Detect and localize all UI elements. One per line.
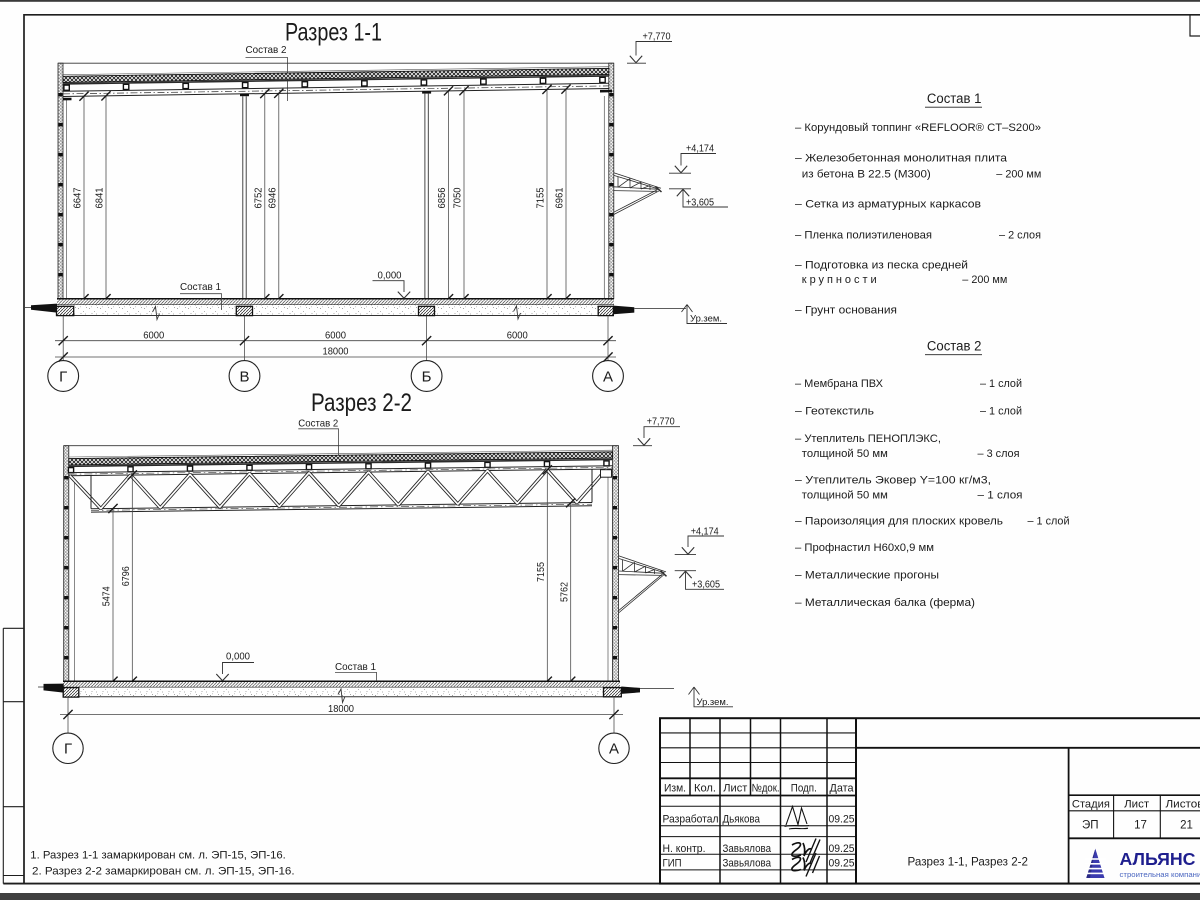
svg-text:+3,605: +3,605 bbox=[686, 197, 714, 208]
svg-text:Состав 2: Состав 2 bbox=[298, 417, 338, 429]
svg-text:7155: 7155 bbox=[536, 562, 547, 582]
svg-text:7050: 7050 bbox=[453, 187, 464, 208]
svg-text:2. Разрез 2-2 замаркирован см.: 2. Разрез 2-2 замаркирован см. л. ЭП-15,… bbox=[32, 866, 295, 878]
svg-text:– Утеплитель ПЕНОПЛЭКС,: – Утеплитель ПЕНОПЛЭКС, bbox=[795, 433, 941, 445]
svg-text:А: А bbox=[609, 741, 619, 758]
svg-text:+3,605: +3,605 bbox=[692, 579, 720, 590]
svg-text:– Грунт основания: – Грунт основания bbox=[795, 305, 897, 317]
svg-text:Состав 2: Состав 2 bbox=[927, 339, 982, 354]
svg-text:Состав 1: Состав 1 bbox=[180, 281, 221, 293]
svg-text:6000: 6000 bbox=[507, 329, 528, 341]
svg-text:+7,770: +7,770 bbox=[647, 417, 675, 428]
svg-text:В: В bbox=[239, 368, 249, 385]
svg-text:Завьялова: Завьялова bbox=[723, 843, 772, 855]
svg-text:Разрез 2-2: Разрез 2-2 bbox=[311, 389, 412, 417]
svg-text:0,000: 0,000 bbox=[378, 270, 402, 282]
svg-text:– Сетка из арматурных каркасов: – Сетка из арматурных каркасов bbox=[795, 199, 981, 211]
svg-text:6752: 6752 bbox=[254, 187, 265, 208]
svg-text:А: А bbox=[603, 368, 613, 385]
svg-text:Стадия: Стадия bbox=[1072, 798, 1110, 810]
svg-text:– 1 слой: – 1 слой bbox=[980, 406, 1022, 418]
svg-text:– 200 мм: – 200 мм bbox=[996, 169, 1041, 181]
svg-text:Н. контр.: Н. контр. bbox=[663, 843, 706, 855]
svg-text:– 1 слой: – 1 слой bbox=[1028, 516, 1070, 528]
svg-text:Подп.: Подп. bbox=[791, 783, 817, 795]
svg-text:– Корундовый топпинг «REFLOOR®: – Корундовый топпинг «REFLOOR® CT–S200» bbox=[795, 122, 1041, 134]
svg-text:6647: 6647 bbox=[73, 187, 84, 208]
svg-text:– Пленка полиэтиленовая: – Пленка полиэтиленовая bbox=[795, 230, 932, 242]
svg-text:– Пароизоляция для плоских кро: – Пароизоляция для плоских кровель bbox=[795, 516, 1003, 528]
svg-text:6856: 6856 bbox=[437, 187, 448, 208]
svg-text:– Подготовка из песка средней: – Подготовка из песка средней bbox=[795, 260, 968, 272]
svg-text:Завьялова: Завьялова bbox=[723, 857, 772, 869]
svg-text:5762: 5762 bbox=[559, 582, 570, 602]
svg-text:Г: Г bbox=[64, 741, 72, 758]
svg-text:+4,174: +4,174 bbox=[686, 143, 714, 154]
svg-text:Листов: Листов bbox=[1166, 798, 1200, 810]
svg-text:№док.: №док. bbox=[752, 783, 780, 795]
svg-text:6946: 6946 bbox=[268, 187, 279, 208]
svg-text:Ур.зем.: Ур.зем. bbox=[697, 697, 729, 708]
svg-text:ГИП: ГИП bbox=[663, 857, 682, 869]
svg-text:09.25: 09.25 bbox=[829, 813, 855, 825]
svg-text:Разработал: Разработал bbox=[663, 813, 719, 825]
svg-text:АЛЬЯНС: АЛЬЯНС bbox=[1120, 849, 1196, 869]
svg-text:– Мембрана ПВХ: – Мембрана ПВХ bbox=[795, 378, 884, 390]
svg-text:7155: 7155 bbox=[536, 187, 547, 208]
svg-text:6796: 6796 bbox=[121, 566, 132, 586]
svg-text:толщиной 50 мм: толщиной 50 мм bbox=[802, 448, 888, 460]
svg-text:+7,770: +7,770 bbox=[643, 31, 671, 42]
svg-text:Изм.: Изм. bbox=[664, 783, 686, 795]
svg-text:09.25: 09.25 bbox=[829, 843, 855, 855]
svg-text:– Геотекстиль: – Геотекстиль bbox=[795, 406, 874, 418]
svg-text:1. Разрез 1-1 замаркирован см.: 1. Разрез 1-1 замаркирован см. л. ЭП-15,… bbox=[30, 850, 285, 862]
svg-text:09.25: 09.25 bbox=[829, 857, 855, 869]
svg-text:Дата: Дата bbox=[830, 783, 855, 795]
svg-text:– Утеплитель Эковер Y=100 кг/м: – Утеплитель Эковер Y=100 кг/м3, bbox=[795, 475, 991, 487]
svg-text:Лист: Лист bbox=[1124, 798, 1149, 810]
svg-text:Ур.зем.: Ур.зем. bbox=[690, 314, 722, 325]
svg-text:строительная компания: строительная компания bbox=[1120, 870, 1200, 879]
svg-text:18000: 18000 bbox=[323, 345, 349, 357]
svg-text:Состав 2: Состав 2 bbox=[246, 44, 287, 56]
svg-text:5474: 5474 bbox=[102, 586, 113, 606]
svg-text:– Металлическая балка (ферма): – Металлическая балка (ферма) bbox=[795, 597, 975, 609]
svg-text:17: 17 bbox=[1134, 819, 1147, 831]
svg-text:Г: Г bbox=[59, 368, 67, 385]
svg-text:– Профнастил Н60х0,9 мм: – Профнастил Н60х0,9 мм bbox=[795, 542, 934, 554]
svg-text:6841: 6841 bbox=[95, 187, 106, 208]
svg-text:толщиной 50 мм: толщиной 50 мм bbox=[802, 490, 888, 502]
svg-text:Разрез 1-1, Разрез 2-2: Разрез 1-1, Разрез 2-2 bbox=[908, 854, 1029, 868]
svg-text:– 1 слоя: – 1 слоя bbox=[978, 490, 1023, 502]
svg-text:– 200 мм: – 200 мм bbox=[962, 274, 1007, 286]
svg-text:21: 21 bbox=[1180, 819, 1193, 831]
svg-text:Лист: Лист bbox=[723, 783, 747, 795]
svg-text:6961: 6961 bbox=[555, 187, 566, 208]
svg-text:из бетона В 22.5 (М300): из бетона В 22.5 (М300) bbox=[802, 169, 931, 181]
svg-text:– Металлические прогоны: – Металлические прогоны bbox=[795, 570, 939, 582]
svg-text:Состав 1: Состав 1 bbox=[927, 91, 982, 106]
svg-text:Б: Б bbox=[422, 368, 432, 385]
svg-text:Дьякова: Дьякова bbox=[723, 813, 761, 825]
svg-text:0,000: 0,000 bbox=[226, 651, 250, 663]
svg-text:6000: 6000 bbox=[143, 329, 164, 341]
svg-text:Состав 1: Состав 1 bbox=[335, 661, 376, 673]
svg-text:ЭП: ЭП bbox=[1082, 819, 1099, 831]
svg-text:– 1 слой: – 1 слой bbox=[980, 378, 1022, 390]
svg-text:Разрез 1-1: Разрез 1-1 bbox=[285, 19, 382, 47]
svg-text:6000: 6000 bbox=[325, 329, 346, 341]
svg-text:18000: 18000 bbox=[328, 703, 354, 715]
svg-text:крупности: крупности bbox=[802, 274, 877, 286]
svg-text:Кол.: Кол. bbox=[694, 783, 716, 795]
svg-text:– 3 слоя: – 3 слоя bbox=[978, 448, 1020, 460]
svg-text:– 2 слоя: – 2 слоя bbox=[999, 230, 1041, 242]
svg-text:– Железобетонная монолитная п: – Железобетонная монолитная плита bbox=[795, 153, 1008, 165]
